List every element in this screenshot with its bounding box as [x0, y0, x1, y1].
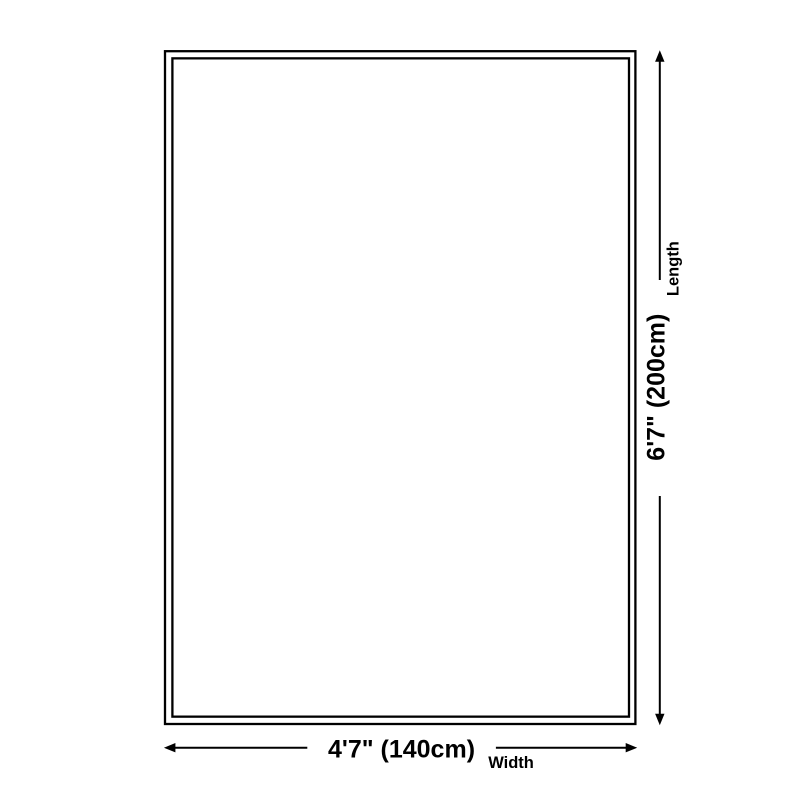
svg-text:6'7" (200cm): 6'7" (200cm): [643, 314, 671, 461]
svg-text:Width: Width: [488, 754, 534, 772]
svg-text:Length: Length: [665, 241, 683, 296]
svg-text:4'7" (140cm): 4'7" (140cm): [328, 735, 475, 763]
